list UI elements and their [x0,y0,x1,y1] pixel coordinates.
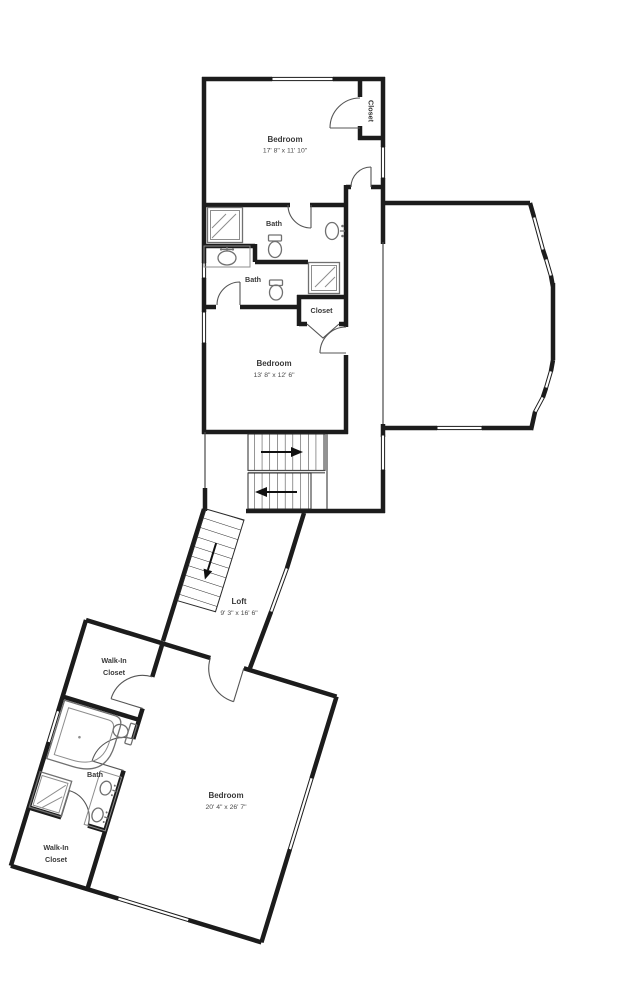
bedroom3-dims: 20' 4" x 26' 7" [205,804,247,811]
door-bedroom1-hall [351,167,371,187]
lower-wing [9,620,338,945]
bedroom1-name: Bedroom [267,135,302,144]
window-bay-upper-1 [532,217,544,251]
sink-bath1 [326,223,346,240]
vanity-bath2 [204,246,250,267]
door-wic2 [61,791,96,826]
window-loft-east [269,567,288,612]
loft-name: Loft [231,597,246,606]
window-bedroom3-east [288,777,313,850]
window-bay-upper-2 [544,259,552,277]
bath1-label: Bath [266,219,282,228]
bedroom2-name: Bedroom [256,359,291,368]
shower-bath2 [309,263,340,294]
bedroom3-name: Bedroom [208,791,243,800]
window-bedroom1-right [381,147,384,178]
closet1-label: Closet [367,100,376,123]
toilet-bath1 [269,235,282,258]
door-bath2 [217,282,240,305]
window-bedroom3-south [117,897,189,922]
window-bay-lower-1 [544,371,552,389]
main-stairs [248,434,325,509]
bedroom1-dims: 17' 8" x 11' 10" [263,148,308,155]
window-bedroom2-left [202,312,205,343]
wic1-line1: Walk-In [101,656,126,665]
toilet-bath2 [270,280,283,300]
door-closet1 [330,98,360,128]
doors-lower [61,630,244,856]
door-bedroom2 [320,327,346,353]
wic2-line2: Closet [45,855,68,864]
wic1-line2: Closet [103,668,126,677]
bedroom2-dims: 13' 8" x 12' 6" [253,372,295,379]
bath2-label: Bath [245,275,261,284]
windows [202,77,552,612]
wic2-line1: Walk-In [43,843,68,852]
loft-dims: 9' 3" x 16' 6" [220,610,258,617]
window-bigroom-bottom [437,426,482,429]
closet2-label: Closet [311,306,334,315]
door-loft-bedroom3 [200,658,244,702]
window-landing-right [381,435,384,470]
bifold-closet2 [307,324,339,338]
toilet-bath3 [110,719,137,745]
door-bath1 [288,205,311,228]
window-bay-lower-2 [534,396,545,413]
floorplan-page: Closet Bedroom 17' 8" x 11' 10" Bath Bat… [0,0,626,1000]
shower-bath1 [208,208,243,243]
window-bedroom1-top [272,77,333,80]
bath3-label: Bath [87,770,103,779]
floorplan-image: Closet Bedroom 17' 8" x 11' 10" Bath Bat… [0,0,626,1000]
labels: Closet Bedroom 17' 8" x 11' 10" Bath Bat… [43,100,375,864]
